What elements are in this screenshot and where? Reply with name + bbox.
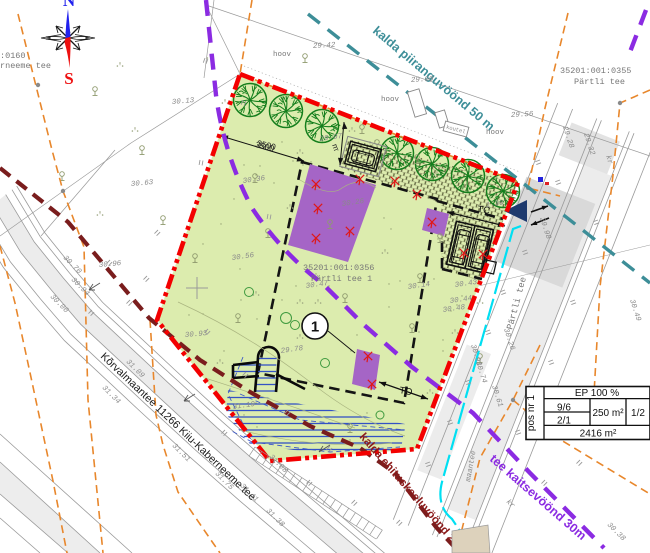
svg-text:Pärtli tee: Pärtli tee xyxy=(574,77,625,87)
svg-text:EP 100 %: EP 100 % xyxy=(575,388,619,399)
svg-text:N: N xyxy=(63,0,76,10)
svg-text:rneeme tee: rneeme tee xyxy=(0,61,51,71)
svg-text:35201:001:0356: 35201:001:0356 xyxy=(303,263,374,273)
svg-text:1/2: 1/2 xyxy=(631,408,645,419)
svg-text:TO: TO xyxy=(398,385,413,398)
svg-text:29.56: 29.56 xyxy=(511,111,534,120)
svg-text:250 m²: 250 m² xyxy=(592,408,624,419)
svg-text:29.42: 29.42 xyxy=(313,42,336,51)
svg-text:35201:001:0355: 35201:001:0355 xyxy=(560,66,631,76)
svg-text:1: 1 xyxy=(311,319,319,336)
svg-text:9/6: 9/6 xyxy=(557,403,571,414)
svg-text:hoov: hoov xyxy=(273,51,292,59)
svg-text:29.60: 29.60 xyxy=(411,76,434,85)
svg-text:hoov: hoov xyxy=(381,96,400,104)
svg-text:S: S xyxy=(64,69,73,88)
svg-text::0160: :0160 xyxy=(0,51,26,61)
svg-text:2416 m²: 2416 m² xyxy=(580,429,617,440)
svg-text:pos nr 1: pos nr 1 xyxy=(526,394,537,431)
svg-text:hoov: hoov xyxy=(486,129,505,137)
svg-text:2/1: 2/1 xyxy=(557,416,571,427)
